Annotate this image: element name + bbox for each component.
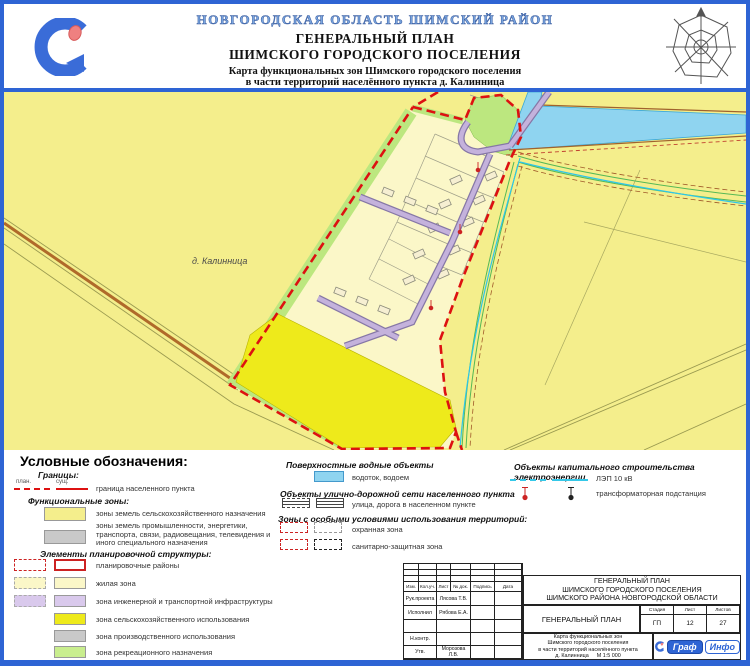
water-heading: Поверхностные водные объекты [286,460,434,470]
cell [471,592,495,606]
functional-zones-map: д. Калинница [4,92,746,450]
stage-label: Стадия [641,606,674,615]
cell [495,620,522,633]
signer-name: Рябова Е.А. [437,606,471,620]
infrastructure-swatch [54,595,86,607]
cell [495,633,522,646]
signer-role: Рук.проекта [404,592,437,606]
title-block-signatures: Изм. Кол.уч. Лист № док. Подпись Дата Ру… [403,563,523,660]
logo-text-info: Инфо [705,640,740,654]
signer-name: Лясова Т.В. [437,592,471,606]
cell [471,633,495,646]
col-ndok: № док. [451,582,471,592]
boundary-planned-sample [14,488,50,490]
street-planned-swatch [282,498,310,508]
protection-zone-planned-swatch [280,522,308,533]
stage-value: ГП [641,615,674,632]
col-izm: Изм. [404,582,419,592]
zone-label-industry: зоны земель промышленности, энергетики, … [96,522,288,548]
recreation-label: зона рекреационного назначения [96,649,212,658]
frame-right [746,0,750,666]
header: НОВГОРОДСКАЯ ОБЛАСТЬ ШИМСКИЙ РАЙОН ГЕНЕР… [4,4,746,88]
infrastructure-label: зона инженерной и транспортной инфрастру… [96,598,273,607]
stage-sheet-cells: Стадия Лист Листов ГП 12 27 [640,605,741,633]
planning-district-planned-swatch [14,559,46,571]
functional-heading: Функциональные зоны: [28,496,129,506]
planned-label: план. [16,479,31,485]
cell [495,592,522,606]
power-line-planned-sample [510,479,546,481]
zone-label-agri: зоны земель сельскохозяйственного назнач… [96,510,266,519]
infrastructure-planned-swatch [14,595,46,607]
planning-district-label: планировочные районы [96,562,179,571]
logo-cell: Граф Инфо [653,633,741,660]
recreation-swatch [54,646,86,658]
signer-role: Утв. [404,646,437,659]
grafinfo-small-icon [654,639,665,654]
agri-use-label: зона сельскохозяйственного использования [96,616,249,625]
water-label: водоток, водоем [352,474,409,483]
sanitary-zone-label: санитарно-защитная зона [352,543,442,552]
planning-heading: Элементы планировочной структуры: [40,549,211,559]
compass-rose-icon [664,6,738,86]
street-swatch [316,498,344,508]
existing-label: сущ. [56,479,69,485]
sheets-label: Листов [707,606,740,615]
cell [495,606,522,620]
zone-swatch-industry [44,530,86,544]
sanitary-zone-planned-swatch [280,539,308,550]
power-line-label: ЛЭП 10 кВ [596,475,633,484]
map-subtitle-line1: Карта функциональных зон Шимского городс… [124,66,626,77]
cell [471,646,495,659]
sheets-value: 27 [707,615,740,632]
region-title: НОВГОРОДСКАЯ ОБЛАСТЬ ШИМСКИЙ РАЙОН [124,12,626,28]
residential-planned-swatch [14,577,46,589]
water-swatch [314,471,344,482]
residential-label: жилая зона [96,580,136,589]
planning-district-swatch [54,559,86,571]
header-titles: НОВГОРОДСКАЯ ОБЛАСТЬ ШИМСКИЙ РАЙОН ГЕНЕР… [124,10,626,88]
transformer-label: трансформаторная подстанция [596,490,706,499]
cell [495,646,522,659]
cell [404,620,437,633]
street-label: улица, дорога в населенном пункте [352,501,476,510]
cell [471,606,495,620]
signer-role: Н.контр. [404,633,437,646]
signer-role: Исполнил [404,606,437,620]
signer-name: Морозова Л.В. [437,646,471,659]
caption-settlement: д. Калинница [555,653,589,659]
col-list: Лист [437,582,451,592]
map-subtitle-line2: в части территорий населённого пункта д.… [124,77,626,88]
protection-zone-swatch [314,522,342,533]
grafinfo-logo-icon [28,18,92,76]
project-title-line3: ШИМСКОГО РАЙОНА НОВГОРОДСКОЙ ОБЛАСТИ [546,594,717,603]
boundary-existing-sample [56,488,88,490]
production-label: зона производственного использования [96,633,235,642]
residential-swatch [54,577,86,589]
project-title-cell: ГЕНЕРАЛЬНЫЙ ПЛАН ШИМСКОГО ГОРОДСКОГО ПОС… [523,575,741,605]
caption-scale: М 1:5 000 [597,653,621,659]
sheet-label: Лист [674,606,707,615]
transformer-planned-icon [520,486,530,501]
agri-use-swatch [54,613,86,625]
cell [471,620,495,633]
transformer-icon [566,486,576,501]
power-line-sample [552,479,588,481]
col-podpis: Подпись [471,582,495,592]
sanitary-zone-swatch [314,539,342,550]
logo-text-graf: Граф [667,640,703,654]
production-swatch [54,630,86,642]
signer-name [437,633,471,646]
map-caption-cell: Карта функциональных зон Шимского городс… [523,633,653,660]
frame-bottom [0,660,750,666]
col-koluch: Кол.уч. [419,582,437,592]
sheet-value: 12 [674,615,707,632]
zone-swatch-agri [44,507,86,521]
legend-title: Условные обозначения: [20,453,188,469]
plan-title-line1: ГЕНЕРАЛЬНЫЙ ПЛАН [124,31,626,47]
document-title-cell: ГЕНЕРАЛЬНЫЙ ПЛАН [523,605,640,633]
page: НОВГОРОДСКАЯ ОБЛАСТЬ ШИМСКИЙ РАЙОН ГЕНЕР… [0,0,750,666]
settlement-name-label: д. Калинница [192,256,247,266]
col-data: Дата [495,582,522,592]
cell [437,620,471,633]
protection-zone-label: охранная зона [352,526,403,535]
plan-title-line2: ШИМСКОГО ГОРОДСКОГО ПОСЕЛЕНИЯ [124,47,626,63]
boundary-label: граница населенного пункта [96,485,195,494]
